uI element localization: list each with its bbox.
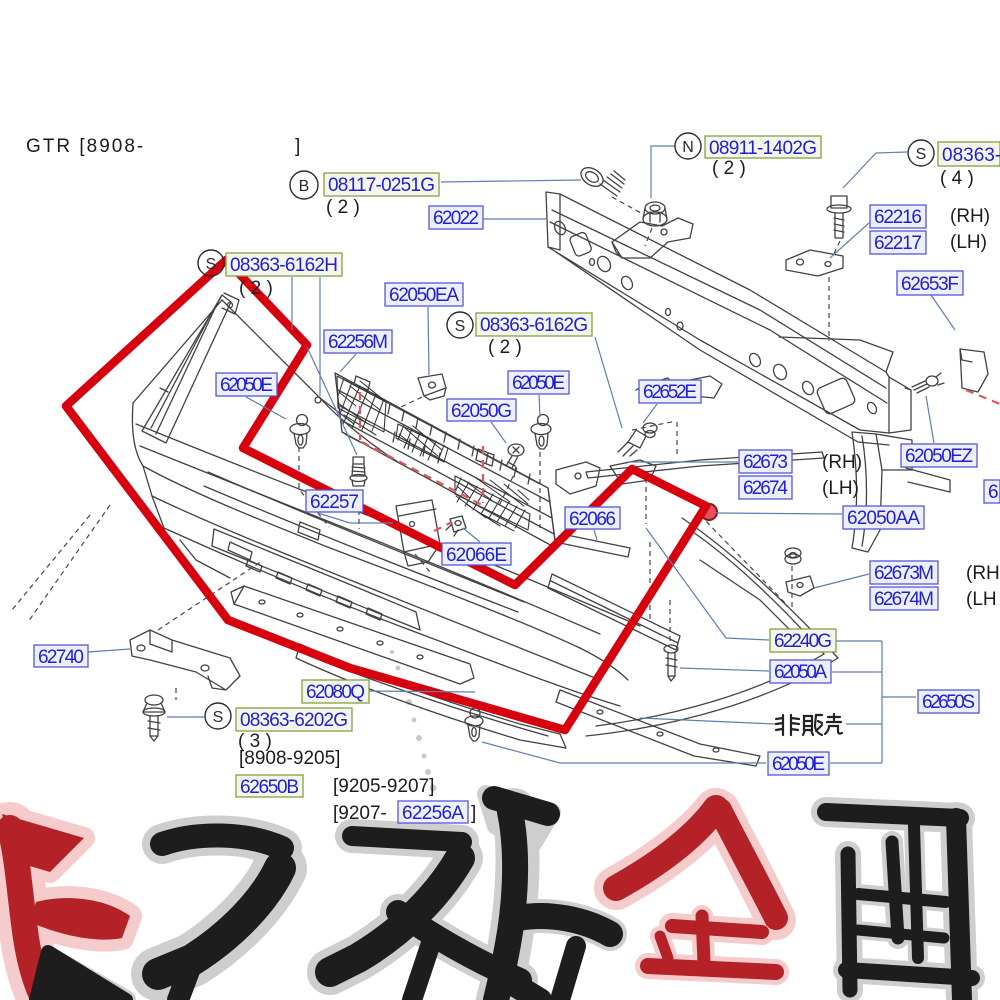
svg-text:62674: 62674: [743, 478, 788, 499]
svg-text:62080Q: 62080Q: [306, 682, 365, 703]
svg-text:62216: 62216: [874, 207, 922, 228]
svg-text:(LH: (LH: [966, 589, 997, 610]
svg-text:[8908-9205]: [8908-9205]: [239, 748, 340, 769]
svg-text:[9205-9207]: [9205-9207]: [333, 776, 434, 797]
svg-text:08911-1402G: 08911-1402G: [709, 138, 817, 159]
svg-text:(RH: (RH: [966, 563, 1000, 584]
svg-text:62256M: 62256M: [328, 332, 388, 353]
svg-text:62066: 62066: [569, 509, 616, 530]
svg-text:62066E: 62066E: [446, 545, 507, 566]
svg-text:62: 62: [988, 482, 1000, 503]
svg-text:08117-0251G: 08117-0251G: [328, 175, 435, 196]
svg-text:GTR [8908-: GTR [8908-: [26, 136, 145, 157]
svg-text:62673: 62673: [743, 452, 788, 473]
svg-text:62257: 62257: [310, 492, 359, 513]
svg-text:62240G: 62240G: [774, 631, 832, 652]
svg-text:62050E: 62050E: [512, 373, 565, 394]
svg-text:N: N: [682, 139, 694, 156]
svg-text:( 2 ): ( 2 ): [712, 158, 746, 179]
svg-text:( 2 ): ( 2 ): [239, 278, 273, 299]
svg-text:]: ]: [471, 803, 476, 824]
svg-text:62217: 62217: [874, 233, 922, 254]
svg-text:( 2 ): ( 2 ): [326, 197, 360, 218]
svg-text:62650S: 62650S: [922, 692, 975, 713]
svg-text:]: ]: [295, 136, 300, 157]
svg-text:62673M: 62673M: [874, 563, 934, 584]
svg-text:62740: 62740: [38, 647, 84, 668]
svg-text:62050A: 62050A: [774, 662, 827, 683]
svg-text:62050EZ: 62050EZ: [905, 446, 973, 467]
svg-text:(LH): (LH): [822, 478, 859, 499]
svg-text:S: S: [206, 256, 217, 273]
svg-text:( 2 ): ( 2 ): [488, 337, 522, 358]
svg-text:62652E: 62652E: [643, 382, 697, 403]
svg-text:62650B: 62650B: [240, 777, 299, 798]
svg-text:08363-6202G: 08363-6202G: [240, 710, 348, 731]
svg-text:62050G: 62050G: [451, 401, 512, 422]
svg-text:B: B: [299, 178, 310, 195]
svg-text:(RH): (RH): [822, 452, 862, 473]
svg-text:08363-6162H: 08363-6162H: [230, 255, 338, 276]
svg-text:08363-6: 08363-6: [942, 145, 1000, 166]
svg-text:[9207-: [9207-: [333, 803, 387, 824]
svg-text:62050E: 62050E: [220, 375, 273, 396]
svg-text:(RH): (RH): [950, 206, 990, 227]
svg-text:( 4 ): ( 4 ): [940, 168, 974, 189]
svg-text:08363-6162G: 08363-6162G: [480, 315, 588, 336]
svg-text:S: S: [916, 146, 927, 163]
svg-text:62022: 62022: [433, 208, 479, 229]
svg-text:62050AA: 62050AA: [847, 508, 920, 529]
svg-text:S: S: [213, 709, 224, 726]
svg-text:62050E: 62050E: [772, 754, 825, 775]
svg-text:62050EA: 62050EA: [389, 285, 459, 306]
svg-text:62674M: 62674M: [874, 589, 934, 610]
svg-text:(LH): (LH): [950, 232, 987, 253]
svg-text:S: S: [455, 318, 466, 335]
svg-text:62256A: 62256A: [402, 803, 464, 824]
svg-text:62653F: 62653F: [901, 274, 959, 295]
